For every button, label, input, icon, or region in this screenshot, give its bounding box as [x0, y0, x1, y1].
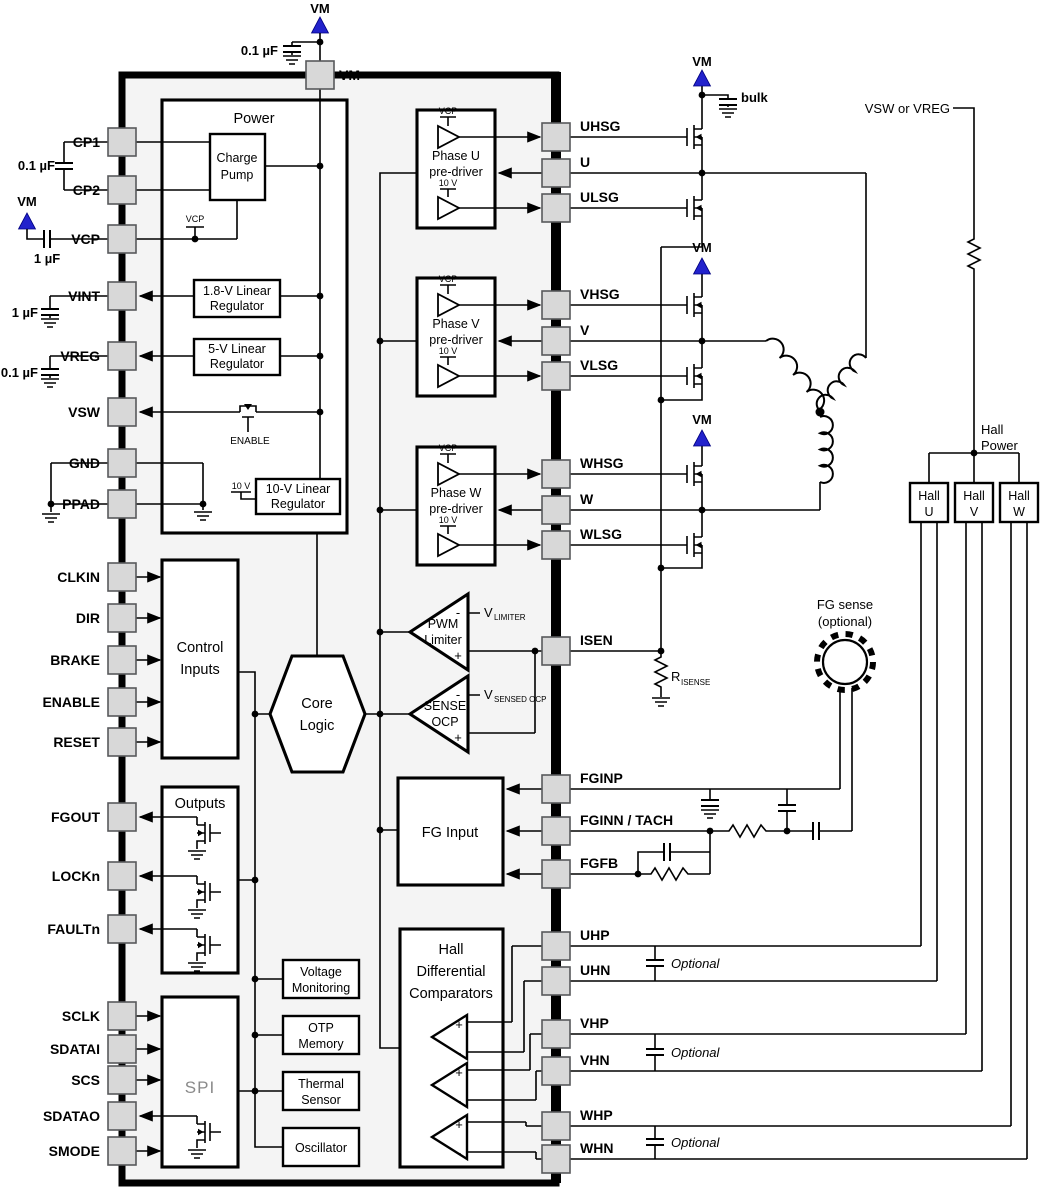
hall-comparators-label: Differential — [416, 964, 485, 980]
pin-cp2 — [108, 176, 136, 204]
ground-icon — [41, 379, 59, 387]
pin-label: SCS — [71, 1072, 100, 1088]
v10-node-label: 10 V — [232, 481, 251, 491]
power-title: Power — [233, 111, 274, 127]
cap-value-label: 1 µF — [34, 251, 60, 266]
vcp-node-label: VCP — [186, 214, 205, 224]
pin-w — [542, 496, 570, 524]
motor-coils — [766, 339, 866, 483]
vm-label: VM — [310, 1, 330, 16]
capacitor-icon — [41, 369, 59, 375]
enable-node-label: ENABLE — [230, 436, 270, 447]
bulk-label: bulk — [741, 90, 768, 105]
hall-sensor-network: VSW or VREG Hall Power Hall U Hall V Hal… — [570, 101, 1038, 1159]
capacitor-icon — [664, 843, 670, 861]
vm-arrow-icon — [312, 17, 329, 33]
junction-dot — [699, 338, 706, 345]
pin-label: WHN — [580, 1140, 613, 1156]
hall-u-label: U — [924, 505, 933, 519]
pin-vcp — [108, 225, 136, 253]
minus-sign: - — [457, 1093, 461, 1108]
pin-label: VHN — [580, 1052, 610, 1068]
junction-dot — [658, 648, 665, 655]
pin-whp — [542, 1112, 570, 1140]
plus-sign: + — [455, 1117, 463, 1132]
junction-dot — [48, 501, 55, 508]
predriver-u-label: Phase U — [432, 149, 480, 163]
pin-enable — [108, 688, 136, 716]
junction-dot — [252, 1032, 259, 1039]
mosfet-icon — [687, 121, 702, 153]
mosfet-icon — [687, 458, 702, 490]
pin-brake — [108, 646, 136, 674]
optional-capacitor-icon — [646, 1139, 664, 1145]
hall-pullup-resistor-icon — [968, 237, 980, 273]
pin-label: GND — [69, 455, 100, 471]
v10-buffer-label: 10 V — [439, 515, 458, 525]
pin-label: FGINP — [580, 770, 623, 786]
minus-sign: - — [456, 605, 460, 620]
pin-vhsg — [542, 291, 570, 319]
pin-label: FAULTn — [47, 921, 100, 937]
junction-dot — [252, 711, 259, 718]
junction-dot — [635, 871, 642, 878]
vm-label: VM — [692, 412, 712, 427]
pin-dir — [108, 604, 136, 632]
junction-dot — [252, 877, 259, 884]
junction-dot — [699, 92, 706, 99]
charge-pump-block — [210, 134, 265, 200]
vm-arrow-icon — [694, 430, 711, 446]
junction-dot — [252, 976, 259, 983]
pin-smode — [108, 1137, 136, 1165]
pin-label: CP1 — [73, 134, 100, 150]
pin-label: VHP — [580, 1015, 609, 1031]
junction-dot — [971, 450, 978, 457]
pin-cp1 — [108, 128, 136, 156]
junction-dot — [377, 629, 384, 636]
pin-vreg — [108, 342, 136, 370]
spi-label: SPI — [185, 1078, 215, 1097]
ground-icon — [652, 698, 670, 706]
plus-sign: + — [455, 1017, 463, 1032]
reg5-label: 5-V Linear — [208, 342, 266, 356]
pin-fginp — [542, 775, 570, 803]
motor-neutral-dot — [816, 408, 825, 417]
junction-dot — [252, 1088, 259, 1095]
minus-sign: - — [457, 1045, 461, 1060]
resistor-icon — [726, 825, 770, 837]
core-logic-label: Logic — [300, 718, 335, 734]
hall-w-label: W — [1013, 505, 1025, 519]
vm-arrow-icon — [19, 213, 36, 229]
risense-label: R — [671, 669, 680, 684]
pin-label: W — [580, 491, 594, 507]
junction-dot — [707, 828, 714, 835]
pwm-limiter-label: Limiter — [424, 633, 462, 647]
vlimiter-label: V — [484, 605, 493, 620]
pin-label: UHN — [580, 962, 610, 978]
pin-label: VM — [339, 67, 360, 83]
pin-label: DIR — [76, 610, 100, 626]
pin-label: VINT — [68, 288, 100, 304]
control-inputs-block — [162, 560, 238, 758]
pin-label: U — [580, 154, 590, 170]
pin-uhsg — [542, 123, 570, 151]
pin-sdatai — [108, 1035, 136, 1063]
junction-dot — [699, 170, 706, 177]
optional-capacitor-icon — [646, 1049, 664, 1055]
thermal-sensor-label: Sensor — [301, 1093, 341, 1107]
vcp-buffer-label: VCP — [439, 443, 458, 453]
vsw-or-vreg-label: VSW or VREG — [865, 101, 950, 116]
junction-dot — [377, 711, 384, 718]
vsensed-label: V — [484, 687, 493, 702]
pin-label: VCP — [71, 231, 100, 247]
hall-power-label: Hall — [981, 422, 1004, 437]
hall-comparators-label: Hall — [439, 942, 464, 958]
junction-dot — [658, 565, 665, 572]
pin-whsg — [542, 460, 570, 488]
charge-pump-label: Pump — [221, 168, 254, 182]
predriver-w-label: pre-driver — [429, 502, 483, 516]
pin-fgfb — [542, 860, 570, 888]
capacitor-icon — [55, 163, 73, 169]
junction-dot — [317, 293, 324, 300]
diagram-canvas: Power Charge Pump VCP 1.8-V Linear Regul… — [0, 0, 1040, 1190]
pin-v — [542, 327, 570, 355]
pin-vint — [108, 282, 136, 310]
pin-label: ULSG — [580, 189, 619, 205]
junction-dot — [317, 409, 324, 416]
pin-label: CLKIN — [57, 569, 100, 585]
ground-icon — [719, 109, 737, 117]
pin-u — [542, 159, 570, 187]
v10-buffer-label: 10 V — [439, 178, 458, 188]
pin-label: CP2 — [73, 182, 100, 198]
pin-fgout — [108, 803, 136, 831]
pin-ppad — [108, 490, 136, 518]
predriver-v-label: Phase V — [432, 317, 480, 331]
pin-label: SMODE — [49, 1143, 100, 1159]
otp-memory-label: Memory — [298, 1037, 344, 1051]
predriver-u-label: pre-driver — [429, 165, 483, 179]
reg10-label: Regulator — [271, 497, 325, 511]
optional-capacitor-icon — [646, 960, 664, 966]
junction-dot — [200, 501, 207, 508]
vm-label: VM — [692, 240, 712, 255]
pin-label: SCLK — [62, 1008, 100, 1024]
junction-dot — [699, 507, 706, 514]
mosfet-icon — [687, 289, 702, 321]
control-inputs-label: Control — [177, 640, 224, 656]
vlimiter-sub-label: LIMITER — [494, 613, 526, 622]
junction-dot — [317, 39, 324, 46]
junction-dot — [658, 397, 665, 404]
junction-dot — [192, 236, 199, 243]
pin-label: UHSG — [580, 118, 621, 134]
predriver-w-label: Phase W — [431, 486, 482, 500]
capacitor-icon — [283, 46, 301, 52]
pin-lockn — [108, 862, 136, 890]
capacitor-icon — [41, 309, 59, 315]
cap-value-label: 0.1 µF — [241, 43, 278, 58]
risense-resistor-icon — [655, 655, 667, 691]
mosfet-icon — [687, 360, 702, 392]
junction-dot — [784, 828, 791, 835]
block-diagram: Power Charge Pump VCP 1.8-V Linear Regul… — [0, 0, 1040, 1190]
predriver-v-label: pre-driver — [429, 333, 483, 347]
pin-label: VHSG — [580, 286, 620, 302]
reg5-label: Regulator — [210, 357, 264, 371]
hall-power-label: Power — [981, 438, 1019, 453]
pin-label: BRAKE — [50, 652, 100, 668]
v10-buffer-label: 10 V — [439, 346, 458, 356]
pin-label: SDATAO — [43, 1108, 100, 1124]
reg18-label: Regulator — [210, 299, 264, 313]
oscillator-label: Oscillator — [295, 1141, 347, 1155]
pin-label: FGFB — [580, 855, 618, 871]
pin-sdatao — [108, 1102, 136, 1130]
pwm-limiter-label: PWM — [428, 617, 459, 631]
bulk-capacitor-icon — [719, 99, 737, 105]
junction-dot — [377, 507, 384, 514]
hall-v-label: Hall — [963, 489, 985, 503]
ground-icon — [283, 56, 301, 64]
sense-ocp-label: OCP — [431, 715, 458, 729]
vm-arrow-icon — [694, 70, 711, 86]
fg-sense-label: FG sense — [817, 597, 873, 612]
plus-sign: + — [454, 730, 462, 745]
minus-sign: - — [456, 687, 460, 702]
pin-label: V — [580, 322, 590, 338]
ground-icon — [41, 319, 59, 327]
capacitor-icon — [44, 230, 50, 248]
pin-vlsg — [542, 362, 570, 390]
junction-dot — [317, 163, 324, 170]
coil-v-icon — [766, 339, 824, 409]
cap-value-label: 0.1 µF — [1, 365, 38, 380]
pin-wlsg — [542, 531, 570, 559]
voltage-monitoring-label: Voltage — [300, 965, 342, 979]
plus-sign: + — [455, 1065, 463, 1080]
power-section: Power Charge Pump VCP 1.8-V Linear Regul… — [136, 89, 347, 533]
junction-dot — [532, 648, 539, 655]
voltage-monitoring-label: Monitoring — [292, 981, 350, 995]
optional-label: Optional — [671, 1045, 721, 1060]
vm-arrow-icon — [694, 258, 711, 274]
hall-u-label: Hall — [918, 489, 940, 503]
pin-label: FGOUT — [51, 809, 100, 825]
pin-ulsg — [542, 194, 570, 222]
optional-label: Optional — [671, 956, 721, 971]
junction-dot — [317, 353, 324, 360]
cap-value-label: 0.1 µF — [18, 158, 55, 173]
pin-gnd — [108, 449, 136, 477]
pin-label: WHSG — [580, 455, 624, 471]
pin-scs — [108, 1066, 136, 1094]
pin-uhn — [542, 967, 570, 995]
pin-vhp — [542, 1020, 570, 1048]
pin-label: LOCKn — [52, 868, 100, 884]
vcp-buffer-label: VCP — [439, 106, 458, 116]
pin-label: UHP — [580, 927, 610, 943]
junction-dot — [377, 827, 384, 834]
pin-label: WLSG — [580, 526, 622, 542]
fg-input-label: FG Input — [422, 825, 478, 841]
pin-sclk — [108, 1002, 136, 1030]
pin-clkin — [108, 563, 136, 591]
pin-label: WHP — [580, 1107, 613, 1123]
hall-v-label: V — [970, 505, 979, 519]
hall-wires — [570, 108, 1027, 1159]
optional-label: Optional — [671, 1135, 721, 1150]
pin-isen — [542, 637, 570, 665]
ground-icon — [701, 810, 719, 818]
mosfet-icon — [687, 529, 702, 561]
pin-vsw — [108, 398, 136, 426]
pin-whn — [542, 1145, 570, 1173]
minus-sign: - — [457, 1145, 461, 1160]
pin-label: VSW — [68, 404, 101, 420]
fg-sense-network: FG sense (optional) — [570, 597, 873, 880]
pin-faultn — [108, 915, 136, 943]
pin-fginn-tach — [542, 817, 570, 845]
pin-label: VLSG — [580, 357, 618, 373]
capacitor-icon — [701, 800, 719, 806]
plus-sign: + — [454, 648, 462, 663]
fg-sense-gear-icon — [817, 634, 873, 690]
junction-dot — [377, 338, 384, 345]
outputs-label: Outputs — [175, 796, 226, 812]
pin-reset — [108, 728, 136, 756]
mosfet-icon — [687, 192, 702, 224]
vcp-buffer-label: VCP — [439, 274, 458, 284]
thermal-sensor-label: Thermal — [298, 1077, 344, 1091]
capacitor-icon — [778, 805, 796, 811]
fg-sense-gear-inner — [823, 640, 867, 684]
pin-vhn — [542, 1057, 570, 1085]
resistor-icon — [648, 868, 692, 880]
coil-w-icon — [820, 416, 833, 483]
pin-label: PPAD — [62, 496, 100, 512]
ground-icon — [42, 514, 60, 522]
hall-w-label: Hall — [1008, 489, 1030, 503]
hall-comparators-label: Comparators — [409, 986, 493, 1002]
vm-label: VM — [692, 54, 712, 69]
control-inputs-label: Inputs — [180, 662, 220, 678]
vsensed-sub-label: SENSED OCP — [494, 695, 546, 704]
pin-label: RESET — [53, 734, 100, 750]
vm-label: VM — [17, 194, 37, 209]
core-logic-hexagon — [270, 656, 365, 772]
risense-sub-label: ISENSE — [681, 678, 710, 687]
otp-memory-label: OTP — [308, 1021, 334, 1035]
reg10-label: 10-V Linear — [266, 482, 331, 496]
capacitor-icon — [813, 822, 819, 840]
core-logic-label: Core — [301, 696, 332, 712]
pin-label: ISEN — [580, 632, 613, 648]
charge-pump-label: Charge — [217, 151, 258, 165]
pin-label: VREG — [60, 348, 100, 364]
pin-uhp — [542, 932, 570, 960]
pin-label: ENABLE — [42, 694, 100, 710]
fg-sense-label: (optional) — [818, 614, 872, 629]
reg18-label: 1.8-V Linear — [203, 284, 271, 298]
pin-label: SDATAI — [50, 1041, 100, 1057]
cap-value-label: 1 µF — [12, 305, 38, 320]
pin-label: FGINN / TACH — [580, 812, 673, 828]
